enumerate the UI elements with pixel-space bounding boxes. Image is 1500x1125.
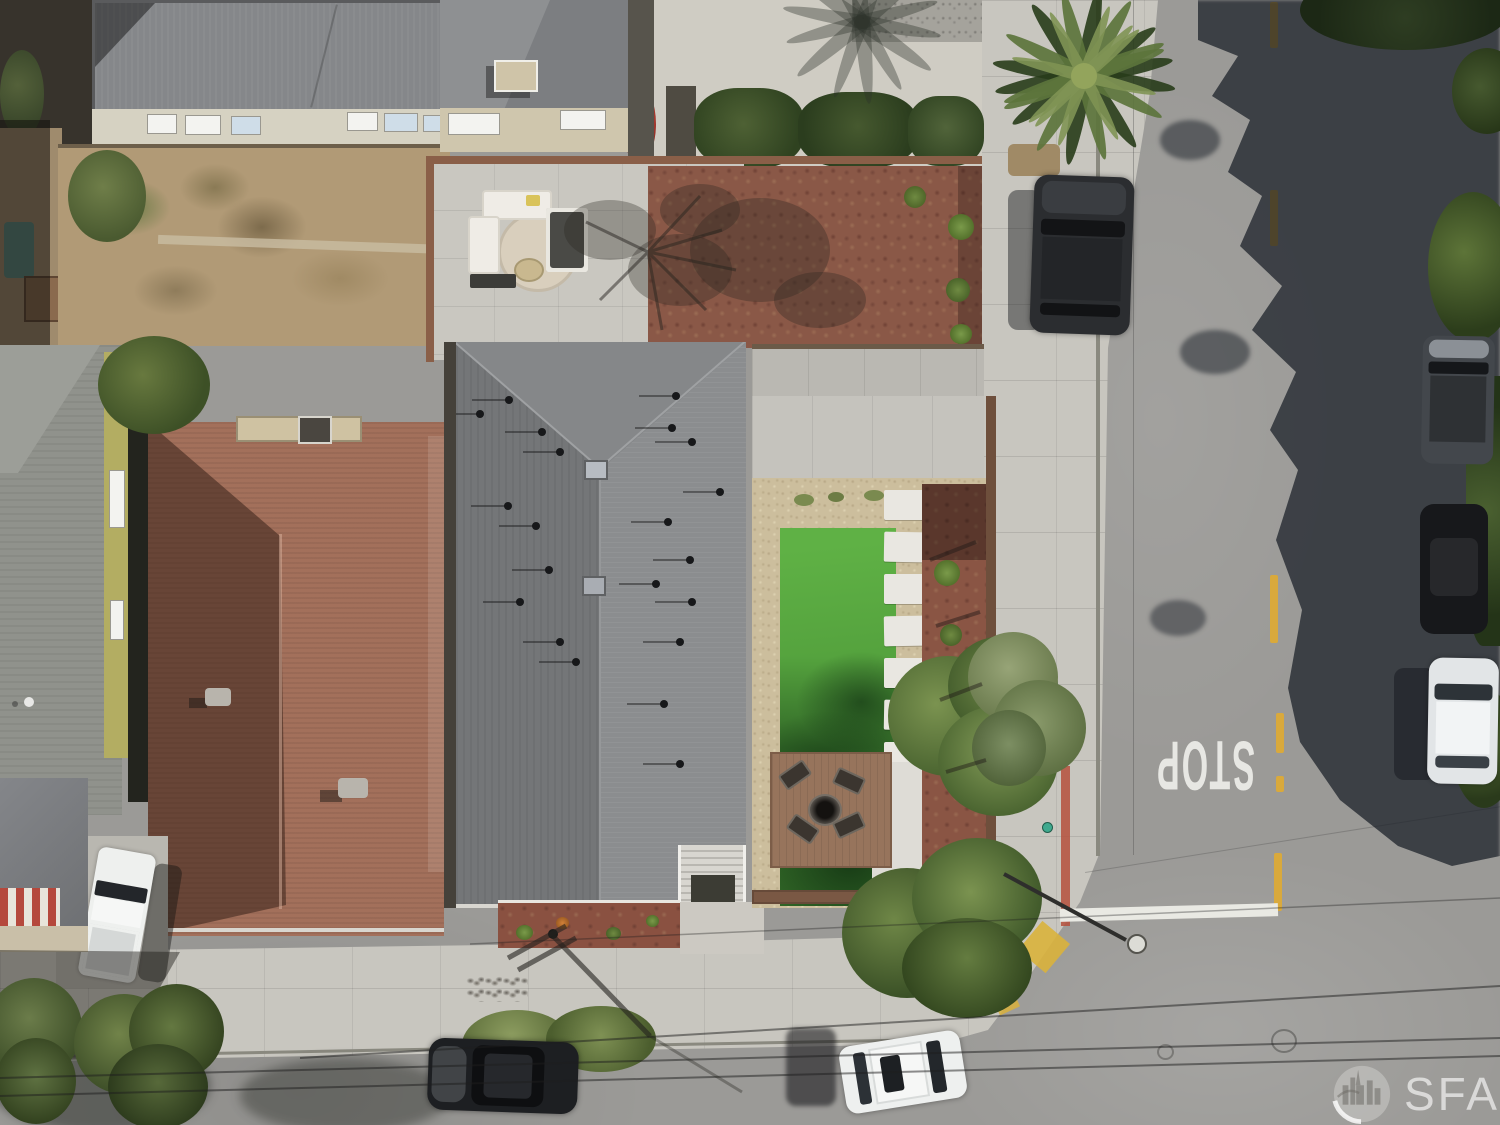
watermark-brand: SFARMLS: [1404, 1067, 1500, 1121]
aerial-photo: STOP: [0, 0, 1500, 1125]
overlay-lines: [0, 0, 1500, 1125]
watermark: SFARMLS: [1330, 1062, 1500, 1125]
sfarmls-logo-icon: [1330, 1062, 1394, 1125]
